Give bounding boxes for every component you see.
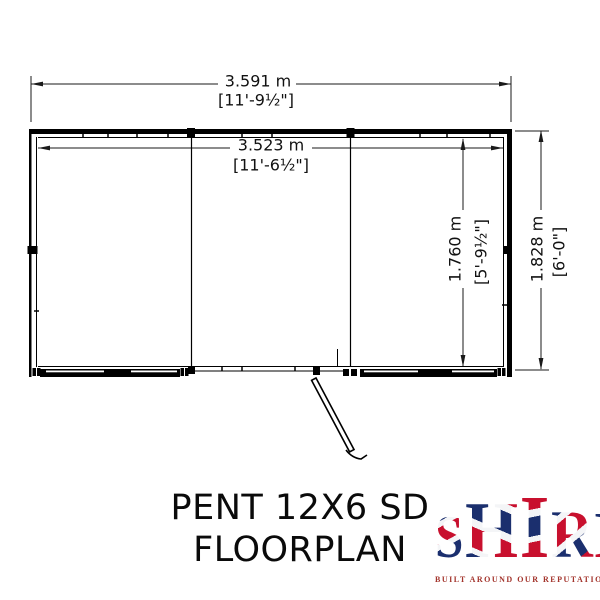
logo-letter-e: E <box>595 503 600 569</box>
dimension-inner-depth-metric: 1.760 m <box>448 216 465 282</box>
logo-letter-h: H <box>465 491 520 571</box>
dimension-outer-depth-imperial: [6'-0"] <box>552 227 569 277</box>
door-hinge-post <box>313 367 320 376</box>
door <box>312 349 367 459</box>
dimension-outer-width-imperial: [11'-9½"] <box>218 93 294 110</box>
logo-tagline: BUILT AROUND OUR REPUTATION <box>435 575 600 584</box>
dimension-arrowheads <box>31 82 543 370</box>
dimension-inner-depth-imperial: [5'-9½"] <box>474 219 491 285</box>
shire-logo-wordmark: S H I R E <box>435 483 600 573</box>
dimension-outer-width-metric: 3.591 m <box>225 74 291 91</box>
dimension-outer-depth-metric: 1.828 m <box>530 216 547 282</box>
shire-logo: S H I R E BUILT AROUND OUR REPUTATION <box>433 498 598 586</box>
logo-letter-s: S <box>435 507 465 567</box>
logo-letter-r: R <box>551 500 594 568</box>
dimension-inner-width-metric: 3.523 m <box>238 138 304 155</box>
dimension-inner-width-imperial: [11'-6½"] <box>233 158 309 175</box>
floorplan-page: 3.591 m [11'-9½"] 3.523 m [11'-6½"] 1.76… <box>0 0 600 600</box>
logo-letter-i: I <box>520 483 551 573</box>
door-leaf <box>312 378 354 452</box>
